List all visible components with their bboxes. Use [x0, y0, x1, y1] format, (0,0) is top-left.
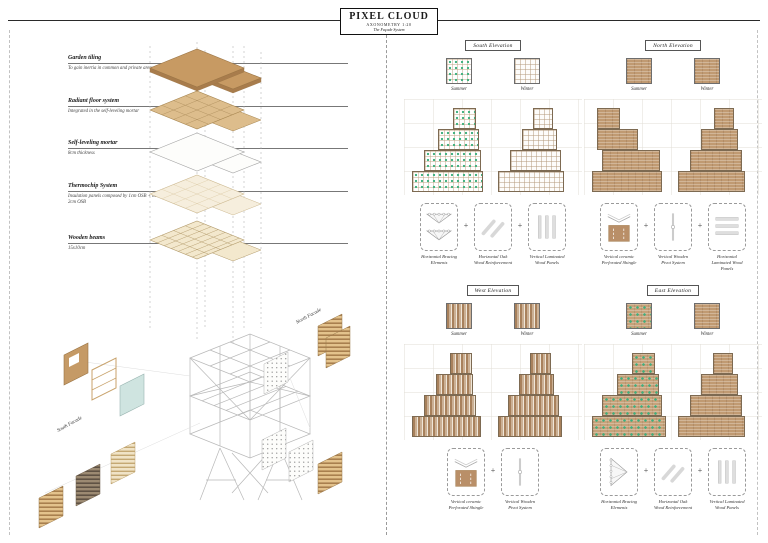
component-label: Vertical ceramic Perforated Shingle — [599, 254, 639, 266]
component-label: Horizontal Oak Wood Reinforcement — [653, 499, 693, 511]
page-tagline: The Façade System — [341, 27, 437, 32]
component: Horizontal Bracing Elements — [599, 448, 639, 511]
component-box — [501, 448, 539, 496]
season-thumbnails: Summer Winter — [404, 303, 582, 337]
garden-tiling-layer — [150, 49, 261, 93]
radiant-floor-layer — [150, 91, 261, 131]
season-label: Winter — [694, 332, 720, 337]
winter-thumbnail — [514, 58, 540, 84]
component-box — [474, 203, 512, 251]
elevation-block — [522, 129, 557, 150]
component-label: Vertical Laminated Wood Panels — [707, 499, 747, 511]
component-label: Vertical ceramic Perforated Shingle — [446, 499, 486, 511]
component-box — [447, 448, 485, 496]
elevation-block — [602, 395, 662, 416]
elevation-block — [508, 395, 559, 416]
plus-sign: + — [642, 203, 650, 249]
season-thumbnails: Summer Winter — [584, 303, 762, 337]
season-label: Summer — [446, 332, 472, 337]
elevation-block — [412, 171, 483, 192]
component-row: Vertical ceramic Perforated Shingle + Ve… — [584, 203, 762, 273]
stepped-elevation-drawing — [584, 344, 762, 440]
north-elevation-panel: North Elevation Summer Winter Vertical c… — [584, 40, 762, 273]
component-row: Horizontal Bracing Elements + Horizontal… — [584, 448, 762, 511]
elevation-header: North Elevation — [645, 40, 701, 51]
season-thumbnails: Summer Winter — [584, 58, 762, 92]
elevation-block — [690, 150, 743, 171]
elevation-block — [453, 108, 476, 129]
component-row: Vertical ceramic Perforated Shingle + Ve… — [404, 448, 582, 511]
elevation-block — [533, 108, 554, 129]
elevation-block — [602, 150, 660, 171]
summer-figure: Summer — [626, 58, 652, 92]
component-row: Horizontal Bracing Elements + Horizontal… — [404, 203, 582, 266]
winter-thumbnail — [514, 303, 540, 329]
component-box — [600, 203, 638, 251]
elevation-block — [592, 171, 662, 192]
poster-page: PIXEL CLOUD AXONOMETRY 1:20 The Façade S… — [0, 0, 768, 543]
component-box — [708, 203, 746, 251]
plus-sign: + — [462, 203, 470, 249]
thermochip-layer — [150, 175, 261, 215]
diagonals-icon — [657, 451, 689, 493]
elevation-block — [436, 374, 473, 395]
winter-thumbnail — [694, 58, 720, 84]
elevation-block — [498, 171, 564, 192]
vbars-icon — [711, 451, 743, 493]
component-box — [600, 448, 638, 496]
summer-stack — [592, 102, 670, 192]
summer-thumbnail — [446, 303, 472, 329]
component: Horizontal Bracing Elements — [419, 203, 459, 266]
winter-figure: Winter — [514, 303, 540, 337]
stepped-elevation-drawing — [584, 99, 762, 195]
season-thumbnails: Summer Winter — [404, 58, 582, 92]
elevation-block — [438, 129, 478, 150]
elevation-block — [678, 416, 745, 437]
plus-sign: + — [516, 203, 524, 249]
component-box — [654, 203, 692, 251]
elevation-block — [424, 395, 477, 416]
winter-figure: Winter — [694, 303, 720, 337]
winter-stack — [498, 102, 576, 192]
plus-sign: + — [696, 448, 704, 494]
plus-sign: + — [642, 448, 650, 494]
plus-sign: + — [489, 448, 497, 494]
component: Horizontal Oak Wood Reinforcement — [653, 448, 693, 511]
stepped-elevation-drawing — [404, 344, 582, 440]
pivot-icon — [657, 206, 689, 248]
elevation-block — [714, 108, 735, 129]
component-label: Horizontal Oak Wood Reinforcement — [473, 254, 513, 266]
component-label: Horizontal Laminated Wood Panels — [707, 254, 747, 273]
east-elevation-panel: East Elevation Summer Winter Horizontal … — [584, 285, 762, 511]
component-box — [708, 448, 746, 496]
elevation-block — [632, 353, 655, 374]
elevation-block — [424, 150, 482, 171]
winter-stack — [498, 347, 576, 437]
winter-figure: Winter — [694, 58, 720, 92]
mortar-layer — [150, 133, 261, 173]
season-label: Summer — [446, 87, 472, 92]
component: Vertical ceramic Perforated Shingle — [446, 448, 486, 511]
elevation-block — [701, 129, 738, 150]
elevation-block — [701, 374, 738, 395]
elevation-block — [530, 353, 551, 374]
elevation-header: West Elevation — [467, 285, 520, 296]
summer-thumbnail — [446, 58, 472, 84]
shingle-v-icon — [603, 206, 635, 248]
season-label: Winter — [694, 87, 720, 92]
truss-icon — [603, 451, 635, 493]
component-label: Vertical Wooden Pivot System — [500, 499, 540, 511]
elevation-block — [498, 416, 562, 437]
west-elevation-panel: West Elevation Summer Winter Vertical ce… — [404, 285, 582, 511]
center-divider — [386, 30, 387, 535]
axonometric-drawing: South Facade North Facade — [0, 28, 386, 538]
component: Horizontal Laminated Wood Panels — [707, 203, 747, 273]
component-label: Vertical Wooden Pivot System — [653, 254, 693, 266]
summer-stack — [592, 347, 670, 437]
south-elevation-panel: South Elevation Summer Winter Horizontal… — [404, 40, 582, 266]
season-label: Summer — [626, 87, 652, 92]
component: Vertical ceramic Perforated Shingle — [599, 203, 639, 266]
south-facade-label: South Facade — [57, 416, 84, 434]
component-box — [420, 203, 458, 251]
south-facade-panels: South Facade — [39, 343, 144, 528]
elevation-block — [597, 108, 620, 129]
elevation-block — [412, 416, 481, 437]
component: Horizontal Oak Wood Reinforcement — [473, 203, 513, 266]
elevation-header: East Elevation — [647, 285, 699, 296]
winter-stack — [678, 102, 756, 192]
vbars-icon — [531, 206, 563, 248]
elevation-block — [597, 129, 638, 150]
stepped-elevation-drawing — [404, 99, 582, 195]
component: Vertical Wooden Pivot System — [653, 203, 693, 266]
hbars-icon — [711, 206, 743, 248]
summer-figure: Summer — [446, 58, 472, 92]
season-label: Summer — [626, 332, 652, 337]
wooden-beams-layer — [150, 221, 261, 261]
elevation-header: South Elevation — [465, 40, 520, 51]
summer-thumbnail — [626, 303, 652, 329]
north-facade-label: North Facade — [295, 307, 323, 326]
component: Vertical Laminated Wood Panels — [707, 448, 747, 511]
elevation-block — [592, 416, 666, 437]
winter-stack — [678, 347, 756, 437]
elevation-block — [678, 171, 745, 192]
plus-sign: + — [696, 203, 704, 249]
elevation-block — [450, 353, 472, 374]
component: Vertical Laminated Wood Panels — [527, 203, 567, 266]
season-label: Winter — [514, 87, 540, 92]
elevation-block — [519, 374, 555, 395]
title-box: PIXEL CLOUD AXONOMETRY 1:20 The Façade S… — [340, 8, 438, 35]
component-box — [654, 448, 692, 496]
elevation-block — [713, 353, 734, 374]
winter-figure: Winter — [514, 58, 540, 92]
season-label: Winter — [514, 332, 540, 337]
summer-figure: Summer — [626, 303, 652, 337]
component-label: Horizontal Bracing Elements — [419, 254, 459, 266]
page-title: PIXEL CLOUD — [341, 11, 437, 22]
component-label: Horizontal Bracing Elements — [599, 499, 639, 511]
winter-thumbnail — [694, 303, 720, 329]
elevation-block — [690, 395, 743, 416]
north-facade-panels: North Facade — [262, 307, 350, 494]
summer-stack — [412, 102, 490, 192]
component: Vertical Wooden Pivot System — [500, 448, 540, 511]
summer-thumbnail — [626, 58, 652, 84]
diagonals-icon — [477, 206, 509, 248]
elevation-block — [617, 374, 658, 395]
elevation-block — [510, 150, 562, 171]
summer-stack — [412, 347, 490, 437]
summer-figure: Summer — [446, 303, 472, 337]
shingle-v-icon — [450, 451, 482, 493]
pivot-icon — [504, 451, 536, 493]
component-box — [528, 203, 566, 251]
component-label: Vertical Laminated Wood Panels — [527, 254, 567, 266]
truss-icon — [423, 206, 455, 248]
